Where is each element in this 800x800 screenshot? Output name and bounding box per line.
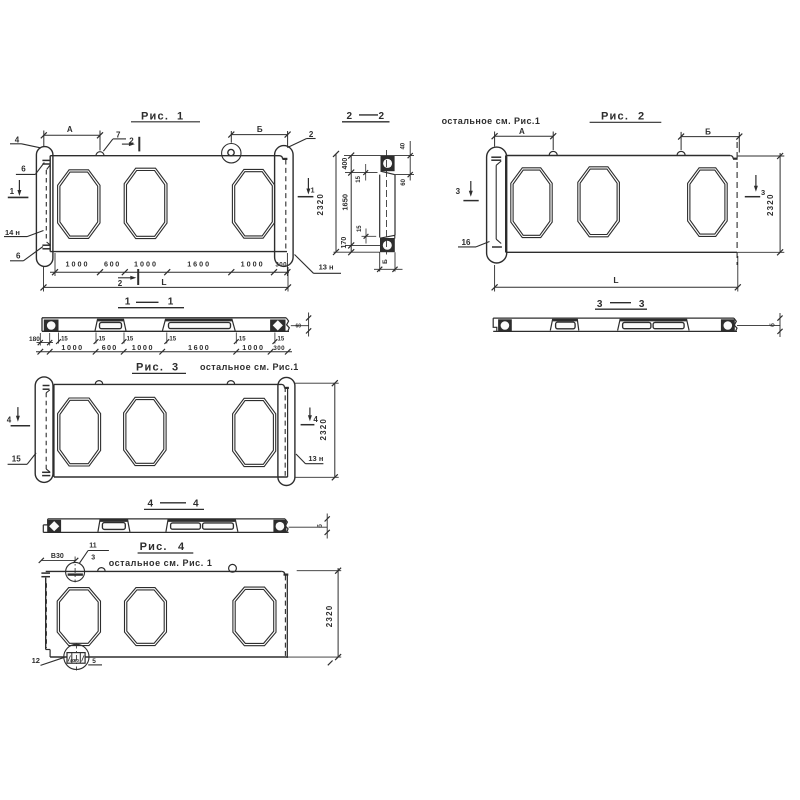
svg-text:15: 15 <box>127 337 134 343</box>
svg-text:2: 2 <box>379 111 385 122</box>
svg-text:4: 4 <box>7 415 12 424</box>
svg-text:3: 3 <box>456 187 461 196</box>
svg-text:остальное см. Рис. 1: остальное см. Рис. 1 <box>109 558 213 568</box>
svg-text:13 н: 13 н <box>319 262 334 271</box>
svg-text:L: L <box>613 275 618 285</box>
svg-text:Рис.: Рис. <box>140 541 168 553</box>
svg-text:Рис.: Рис. <box>601 111 629 123</box>
svg-text:А: А <box>519 127 525 136</box>
svg-text:остальное см. Рис.1: остальное см. Рис.1 <box>442 116 541 126</box>
svg-text:400: 400 <box>342 158 349 170</box>
svg-text:1: 1 <box>168 297 174 308</box>
svg-text:1600: 1600 <box>188 343 210 352</box>
svg-text:1000: 1000 <box>242 343 264 352</box>
svg-text:15: 15 <box>356 175 362 182</box>
svg-text:300: 300 <box>273 345 285 352</box>
svg-text:1650: 1650 <box>340 194 349 211</box>
svg-text:5: 5 <box>92 658 96 665</box>
svg-text:4: 4 <box>15 135 20 144</box>
svg-text:1000: 1000 <box>241 260 265 269</box>
svg-text:2320: 2320 <box>319 418 328 441</box>
svg-text:11: 11 <box>89 543 97 550</box>
svg-text:300: 300 <box>275 262 287 269</box>
svg-text:15: 15 <box>99 337 106 343</box>
svg-text:остальное см. Рис.1: остальное см. Рис.1 <box>200 362 299 372</box>
svg-text:2: 2 <box>309 130 314 139</box>
svg-text:600: 600 <box>104 260 121 269</box>
svg-text:15: 15 <box>278 337 285 343</box>
svg-text:2: 2 <box>118 279 123 288</box>
svg-text:2: 2 <box>347 111 353 122</box>
svg-text:1: 1 <box>10 187 15 196</box>
svg-text:3: 3 <box>172 362 178 374</box>
svg-text:1000: 1000 <box>132 343 154 352</box>
svg-text:12: 12 <box>32 656 40 665</box>
svg-text:3: 3 <box>597 299 603 310</box>
svg-text:1600: 1600 <box>187 260 211 269</box>
svg-text:3: 3 <box>639 299 645 310</box>
svg-text:2: 2 <box>638 111 644 123</box>
svg-text:2320: 2320 <box>325 605 334 628</box>
svg-text:60: 60 <box>296 323 302 329</box>
svg-text:Б: Б <box>257 125 263 134</box>
svg-text:15: 15 <box>239 337 246 343</box>
svg-text:А: А <box>67 125 73 134</box>
svg-text:2320: 2320 <box>316 193 325 216</box>
svg-text:1: 1 <box>177 111 183 123</box>
svg-text:1000: 1000 <box>134 260 158 269</box>
svg-text:600: 600 <box>102 343 118 352</box>
svg-text:1: 1 <box>125 297 131 308</box>
svg-text:6: 6 <box>16 252 21 261</box>
svg-text:В30: В30 <box>51 553 64 560</box>
svg-text:3: 3 <box>761 188 765 197</box>
svg-text:40: 40 <box>401 142 407 149</box>
svg-text:15: 15 <box>12 454 21 463</box>
svg-text:16: 16 <box>462 238 471 247</box>
svg-text:б: б <box>770 323 777 327</box>
svg-text:б: б <box>317 524 324 528</box>
svg-text:1000: 1000 <box>61 343 83 352</box>
svg-text:60: 60 <box>401 178 407 185</box>
svg-text:170: 170 <box>341 237 348 249</box>
svg-text:L: L <box>161 277 166 287</box>
svg-text:3: 3 <box>91 555 95 562</box>
svg-text:15: 15 <box>357 225 363 232</box>
svg-text:15: 15 <box>169 337 176 343</box>
svg-text:Б: Б <box>705 127 711 136</box>
svg-text:15: 15 <box>61 337 68 343</box>
svg-text:1: 1 <box>311 187 315 194</box>
svg-text:180: 180 <box>29 336 40 343</box>
svg-text:4: 4 <box>313 415 318 424</box>
svg-text:Рис.: Рис. <box>141 111 169 123</box>
svg-text:6: 6 <box>21 165 26 174</box>
svg-text:4: 4 <box>193 499 199 510</box>
svg-text:7: 7 <box>116 130 121 139</box>
svg-text:4: 4 <box>148 499 154 510</box>
svg-text:13 н: 13 н <box>308 454 323 463</box>
svg-text:1000: 1000 <box>66 260 90 269</box>
svg-text:Рис.: Рис. <box>136 362 164 374</box>
svg-text:14 н: 14 н <box>5 228 20 237</box>
svg-text:2320: 2320 <box>766 193 775 216</box>
svg-text:Б: Б <box>382 259 389 264</box>
svg-text:4: 4 <box>178 541 185 553</box>
